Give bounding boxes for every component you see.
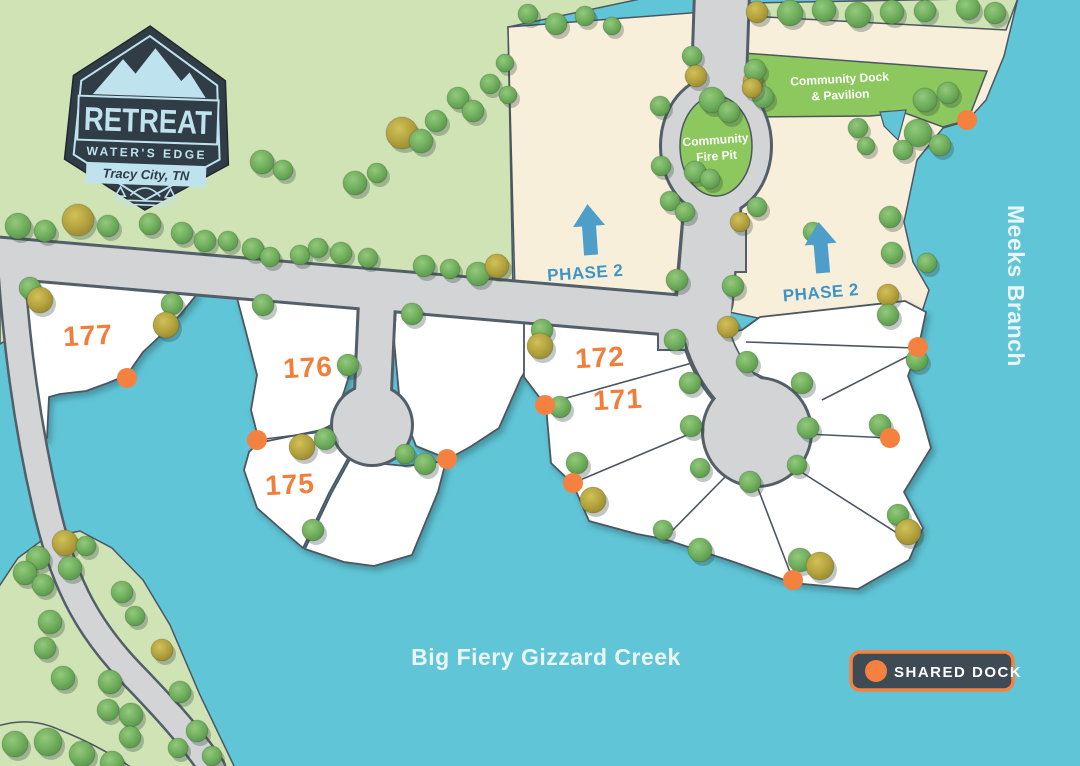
tree-icon [194, 230, 216, 252]
tree-icon [69, 741, 95, 766]
tree-icon [252, 294, 274, 316]
tree-olive-icon [806, 552, 834, 580]
shared-dock-marker-icon [247, 430, 267, 450]
shared-dock-marker-icon [535, 395, 555, 415]
tree-olive-icon [153, 312, 179, 338]
shared-dock-legend-icon [865, 660, 887, 682]
tree-icon [168, 738, 188, 758]
shared-dock-marker-icon [117, 368, 137, 388]
tree-icon [202, 746, 222, 766]
tree-icon [250, 150, 274, 174]
tree-icon [653, 520, 673, 540]
lot-label-171: 171 [592, 383, 643, 417]
tree-icon [877, 304, 899, 326]
tree-olive-icon [580, 487, 606, 513]
tree-icon [718, 101, 740, 123]
tree-icon [893, 140, 913, 160]
tree-icon [496, 54, 514, 72]
tree-icon [845, 2, 871, 28]
tree-icon [666, 269, 688, 291]
tree-icon [651, 156, 671, 176]
tree-icon [302, 519, 324, 541]
tree-icon [812, 0, 836, 22]
tree-icon [119, 703, 143, 727]
tree-olive-icon [527, 333, 553, 359]
tree-icon [97, 215, 119, 237]
tree-olive-icon [877, 284, 899, 306]
tree-icon [343, 171, 367, 195]
tree-icon [700, 169, 720, 189]
tree-olive-icon [742, 78, 762, 98]
tree-icon [747, 197, 767, 217]
tree-icon [518, 4, 538, 24]
tree-icon [937, 82, 959, 104]
shared-dock-marker-icon [880, 428, 900, 448]
tree-olive-icon [895, 519, 921, 545]
tree-icon [848, 118, 868, 138]
tree-icon [664, 329, 686, 351]
tree-icon [690, 458, 710, 478]
tree-icon [395, 444, 415, 464]
tree-icon [499, 86, 517, 104]
tree-icon [744, 59, 766, 81]
creek-label: Big Fiery Gizzard Creek [411, 644, 681, 670]
tree-icon [367, 163, 387, 183]
site-plan-map: 177 176 175 172 171 PHASE 2 PHASE 2 Comm… [0, 0, 1080, 766]
tree-icon [462, 100, 484, 122]
tree-icon [2, 731, 28, 757]
tree-icon [330, 242, 352, 264]
tree-icon [308, 238, 328, 258]
tree-icon [38, 610, 62, 634]
logo-location: Tracy City, TN [102, 165, 190, 183]
tree-icon [722, 275, 744, 297]
shared-dock-marker-icon [783, 570, 803, 590]
entrance-road-north [719, 0, 722, 82]
tree-icon [171, 222, 193, 244]
shared-dock-marker-icon [957, 110, 977, 130]
tree-icon [984, 2, 1006, 24]
tree-icon [32, 574, 54, 596]
lot-label-176: 176 [282, 351, 333, 385]
tree-icon [76, 536, 96, 556]
tree-icon [440, 259, 460, 279]
legend-label: SHARED DOCK [894, 664, 1022, 681]
tree-icon [290, 245, 310, 265]
tree-icon [5, 213, 31, 239]
tree-olive-icon [485, 254, 509, 278]
tree-icon [34, 220, 56, 242]
lot-label-172: 172 [574, 341, 625, 375]
tree-icon [956, 0, 980, 20]
tree-icon [409, 129, 433, 153]
tree-icon [51, 666, 75, 690]
tree-olive-icon [685, 65, 707, 87]
tree-icon [791, 372, 813, 394]
shared-dock-marker-icon [908, 337, 928, 357]
tree-icon [358, 248, 378, 268]
tree-icon [879, 206, 901, 228]
tree-olive-icon [717, 316, 739, 338]
tree-icon [58, 556, 82, 580]
shared-dock-marker-icon [437, 449, 457, 469]
tree-icon [688, 538, 712, 562]
tree-icon [125, 606, 145, 626]
tree-icon [566, 452, 588, 474]
tree-icon [34, 637, 56, 659]
tree-icon [857, 137, 875, 155]
tree-icon [880, 0, 904, 24]
tree-icon [679, 372, 701, 394]
tree-icon [119, 726, 141, 748]
tree-icon [603, 17, 621, 35]
tree-olive-icon [730, 212, 750, 232]
tree-icon [797, 417, 819, 439]
tree-icon [218, 231, 238, 251]
tree-olive-icon [52, 530, 78, 556]
tree-icon [680, 415, 702, 437]
tree-icon [111, 581, 133, 603]
tree-icon [414, 453, 436, 475]
tree-icon [881, 242, 903, 264]
logo-title: RETREAT [83, 100, 212, 141]
tree-olive-icon [746, 1, 768, 23]
tree-icon [337, 354, 359, 376]
fire-pit-label-line2: Fire Pit [696, 148, 738, 165]
tree-olive-icon [27, 287, 53, 313]
tree-icon [425, 110, 447, 132]
tree-icon [401, 303, 423, 325]
tree-icon [545, 13, 567, 35]
tree-icon [913, 88, 937, 112]
lot-label-175: 175 [264, 468, 315, 502]
tree-icon [675, 202, 695, 222]
tree-icon [413, 255, 435, 277]
tree-icon [97, 699, 119, 721]
tree-icon [929, 134, 951, 156]
tree-icon [914, 0, 936, 22]
tree-icon [186, 720, 208, 742]
tree-icon [260, 247, 280, 267]
tree-icon [480, 74, 500, 94]
tree-icon [650, 96, 670, 116]
tree-icon [34, 728, 62, 756]
legend: SHARED DOCK [851, 652, 1022, 690]
tree-icon [736, 351, 758, 373]
shared-dock-marker-icon [563, 473, 583, 493]
branch-label: Meeks Branch [1003, 205, 1029, 367]
lot-label-177: 177 [62, 319, 113, 353]
tree-icon [739, 471, 761, 493]
tree-icon [273, 160, 293, 180]
tree-icon [98, 670, 122, 694]
tree-icon [777, 0, 803, 26]
tree-icon [169, 681, 191, 703]
road-stub-west-culdesac [373, 302, 377, 392]
tree-olive-icon [62, 204, 94, 236]
tree-icon [314, 428, 336, 450]
tree-icon [139, 213, 161, 235]
tree-icon [575, 6, 595, 26]
tree-icon [787, 455, 807, 475]
tree-olive-icon [151, 639, 173, 661]
tree-icon [917, 253, 937, 273]
tree-icon [682, 46, 702, 66]
tree-olive-icon [289, 434, 315, 460]
